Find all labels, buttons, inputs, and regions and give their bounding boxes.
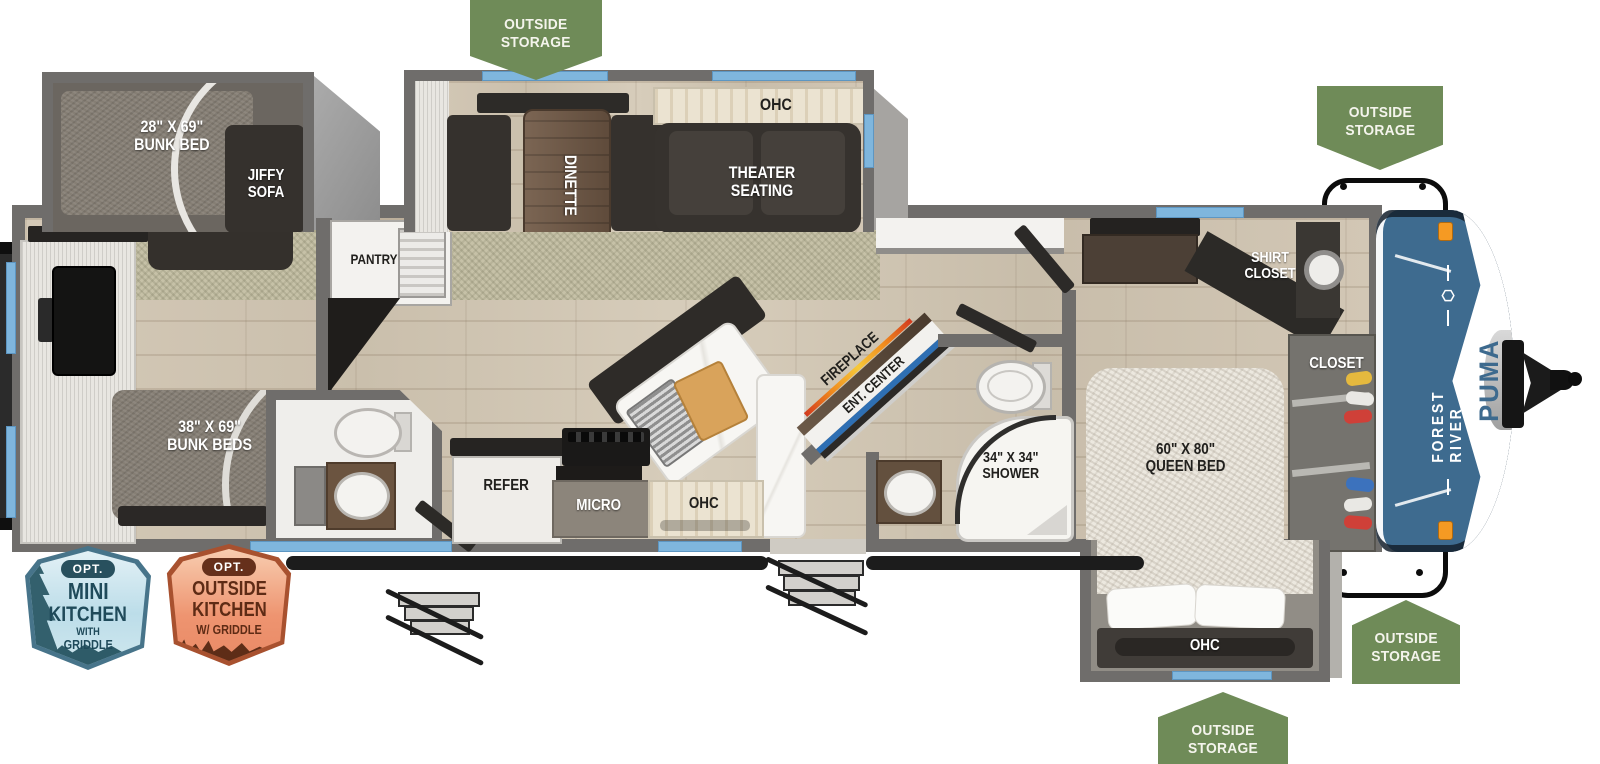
outside-kitchen-line1: OUTSIDE <box>185 579 274 600</box>
puma-text: PUMA <box>1474 338 1505 421</box>
kitchen-ohc-label: OHC <box>668 496 740 513</box>
awning-rail <box>286 556 768 570</box>
kitchen-ohc-shade <box>660 520 750 531</box>
clothes-item <box>1343 409 1372 424</box>
stove-burners <box>568 432 644 442</box>
outside-storage-text: OUTSIDE STORAGE <box>1175 722 1271 758</box>
brand-dash <box>1447 310 1449 326</box>
window <box>712 71 856 81</box>
rear-entry-steps <box>378 580 498 650</box>
bath-sink <box>884 470 936 516</box>
marker-light <box>1438 222 1453 241</box>
outside-kitchen-badge: OPT. OUTSIDE KITCHEN W/ GRIDDLE <box>160 544 298 666</box>
brand-dash <box>1447 265 1449 281</box>
bed-ohc-label: OHC <box>1170 638 1240 655</box>
dinette-bench <box>447 115 511 231</box>
outside-storage-text: OUTSIDE STORAGE <box>1334 104 1427 140</box>
outside-kitchen-face: OPT. OUTSIDE KITCHEN W/ GRIDDLE <box>165 549 293 661</box>
dinette-label: DINETTE <box>553 130 579 240</box>
clothes-item <box>1343 497 1372 513</box>
window <box>864 114 874 168</box>
slide-left-wall <box>415 81 449 232</box>
bath-toilet <box>976 360 1046 414</box>
pillow <box>1106 583 1199 631</box>
mini-kitchen-badge: OPT. MINI KITCHEN WITH GRIDDLE <box>18 546 158 670</box>
mini-kitchen-line1: MINI <box>64 580 113 604</box>
theater-ohc-label: OHC <box>746 96 806 114</box>
brand-dash <box>1447 479 1449 495</box>
refer-label: REFER <box>460 478 552 495</box>
dinette-slideout <box>404 70 874 232</box>
frame-bolt <box>1340 183 1347 190</box>
theater-seating-label: THEATER SEATING <box>698 164 826 199</box>
shower-size: 34" X 34" <box>983 450 1040 466</box>
stove <box>562 428 650 466</box>
window <box>250 541 452 552</box>
clothes-item <box>1343 515 1372 530</box>
pillow <box>1194 584 1286 631</box>
queen-bed-label: 60" X 80"QUEEN BED <box>1116 442 1256 475</box>
rear-bathroom <box>266 390 442 548</box>
living-room-carpet <box>418 226 880 300</box>
frame-bolt <box>1416 569 1423 576</box>
queen-size: 60" X 80" <box>1146 442 1226 459</box>
hitch-bracket <box>1502 340 1524 428</box>
opt-pill: OPT. <box>202 558 257 576</box>
window <box>1172 671 1272 680</box>
refrigerator <box>452 456 562 544</box>
clothes-item <box>1345 391 1374 407</box>
bunk-beds-38-size: 38" X 69" <box>168 418 253 436</box>
microwave-top <box>556 466 642 480</box>
toilet <box>334 408 402 458</box>
awning-rail <box>866 556 1144 570</box>
mini-kitchen-line4: GRIDDLE <box>59 638 118 652</box>
micro-label: MICRO <box>556 498 642 515</box>
slide-roof-shading <box>314 76 380 230</box>
rear-bumper-cap <box>0 518 12 530</box>
clothes-item <box>1345 370 1373 386</box>
bunk-28-text: BUNK BED <box>134 136 209 154</box>
outside-storage-badge-front-side: OUTSIDE STORAGE <box>1352 600 1460 684</box>
dresser <box>1082 234 1198 284</box>
window <box>6 262 16 354</box>
outside-storage-badge-front-top: OUTSIDE STORAGE <box>1317 86 1443 170</box>
outside-storage-text: OUTSIDE STORAGE <box>487 16 584 52</box>
frame-bolt <box>1419 183 1426 190</box>
outside-storage-badge-top: OUTSIDE STORAGE <box>470 0 602 80</box>
closet-label: CLOSET <box>1296 356 1376 373</box>
fr-logo-icon: ⬡ <box>1439 289 1457 302</box>
entry-steps <box>764 552 884 618</box>
jiffy-sofa-label: JIFFY SOFA <box>222 168 310 201</box>
refrigerator-top <box>450 438 568 456</box>
shower-text: SHOWER <box>983 466 1040 482</box>
mini-kitchen-face: OPT. MINI KITCHEN WITH GRIDDLE <box>23 551 153 665</box>
outside-storage-badge-bottom: OUTSIDE STORAGE <box>1158 692 1288 764</box>
clothes-item <box>1345 476 1374 492</box>
bunk-beds-38-text: BUNK BEDS <box>168 436 253 454</box>
window <box>1156 207 1244 218</box>
side-cabinet <box>294 466 326 526</box>
outside-kitchen-line3: W/ GRIDDLE <box>190 623 268 637</box>
closet-shelf <box>1292 462 1370 477</box>
opt-pill: OPT. <box>61 560 116 578</box>
bunk-base-board <box>118 506 268 526</box>
washer-porthole <box>1304 250 1344 290</box>
brand-forest-river: FOREST RIVER ⬡ <box>1435 265 1461 495</box>
brand-puma: PUMA <box>1472 315 1506 445</box>
hitch-ball-knob <box>1568 372 1582 386</box>
mini-kitchen-line2: KITCHEN <box>41 604 134 626</box>
tv <box>52 266 116 376</box>
queen-text: QUEEN BED <box>1146 459 1226 476</box>
pantry-label: PANTRY <box>328 252 420 267</box>
marker-light <box>1438 521 1453 540</box>
window <box>6 426 16 518</box>
shower-label: 34" X 34"SHOWER <box>956 450 1066 481</box>
jiffy-sofa-seat <box>148 226 293 270</box>
bunk-28-size: 28" X 69" <box>134 118 209 136</box>
toilet-seat <box>987 370 1033 402</box>
sink <box>334 472 390 520</box>
outside-kitchen-line2: KITCHEN <box>185 600 274 621</box>
window <box>658 541 742 552</box>
outside-storage-text: OUTSIDE STORAGE <box>1366 630 1445 666</box>
bunk-28-label: 28" X 69"BUNK BED <box>97 118 247 153</box>
rear-bumper-cap <box>0 242 12 254</box>
floor-plan: 38" X 69"BUNK BEDS PANTRY REFER MICRO OH… <box>0 0 1600 764</box>
forest-river-text: FOREST RIVER <box>1430 342 1466 463</box>
